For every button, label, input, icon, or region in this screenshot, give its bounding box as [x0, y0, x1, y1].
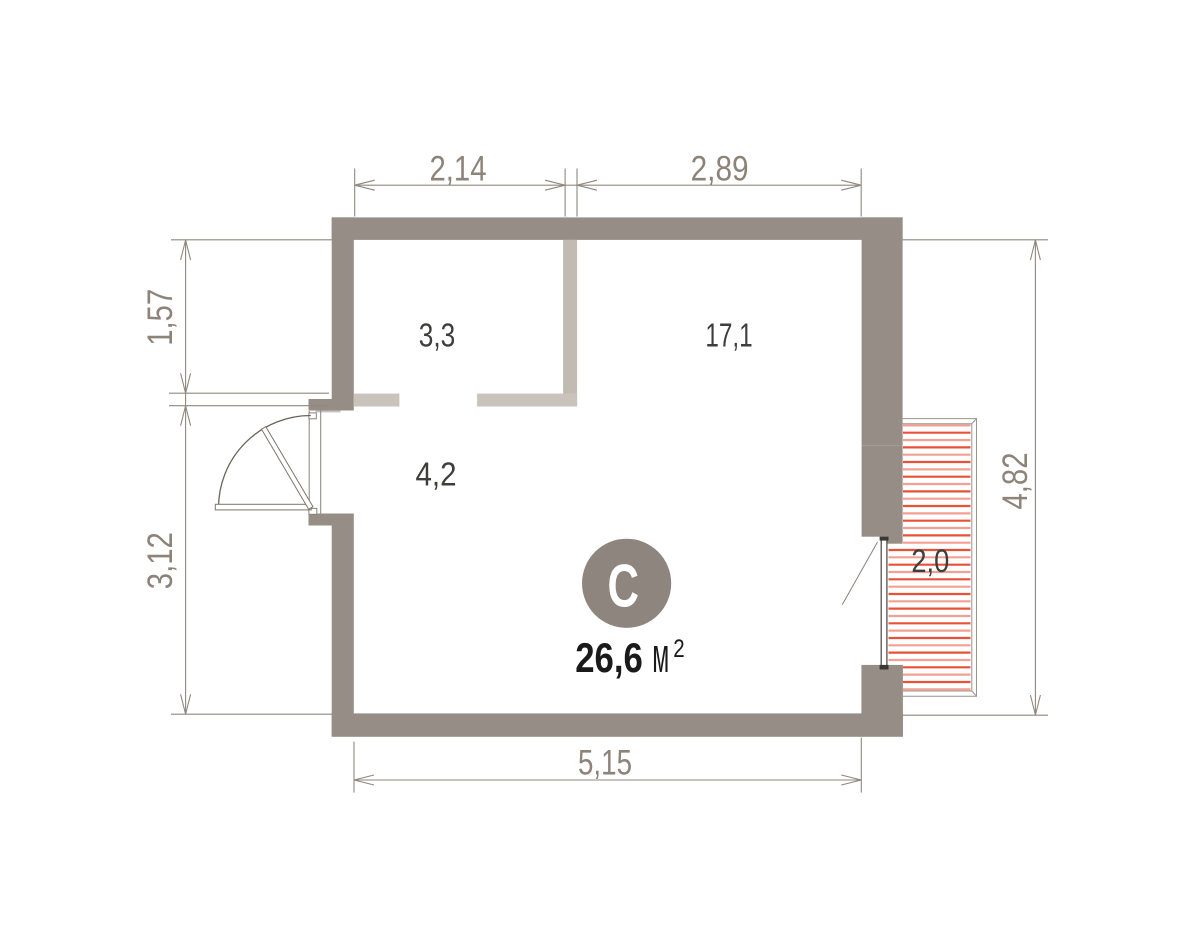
svg-text:2: 2	[673, 635, 684, 663]
svg-text:5,15: 5,15	[578, 744, 632, 783]
svg-text:3,12: 3,12	[141, 532, 180, 589]
svg-text:17,1: 17,1	[705, 318, 752, 355]
svg-text:2,0: 2,0	[911, 543, 949, 579]
svg-text:2,89: 2,89	[691, 149, 749, 188]
svg-text:м: м	[652, 629, 669, 683]
svg-text:2,14: 2,14	[430, 149, 487, 188]
svg-text:1,57: 1,57	[141, 289, 180, 346]
svg-text:26,6: 26,6	[575, 634, 643, 681]
svg-text:C: C	[607, 552, 639, 619]
svg-text:4,82: 4,82	[996, 453, 1035, 510]
svg-text:3,3: 3,3	[419, 318, 456, 355]
svg-text:4,2: 4,2	[416, 456, 457, 493]
